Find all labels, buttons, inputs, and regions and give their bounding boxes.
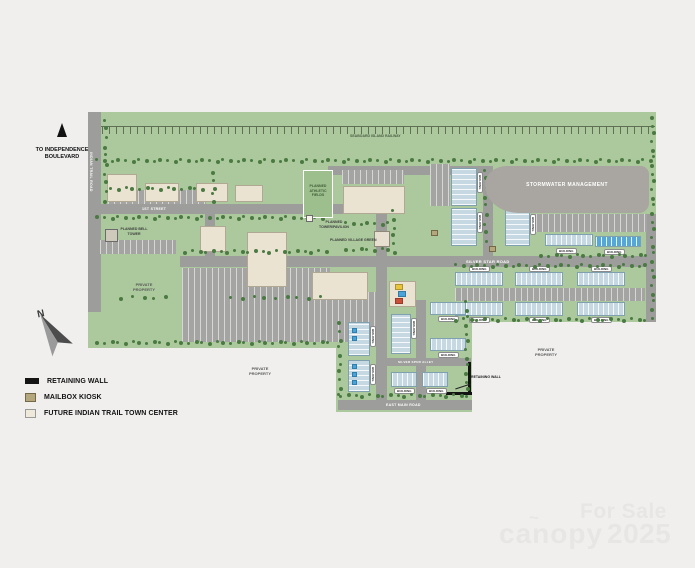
tree-icon xyxy=(188,186,192,190)
tree-icon xyxy=(651,269,654,272)
village-green-label: PLANNED VILLAGE GREEN xyxy=(330,238,400,242)
private-property-label: PRIVATE PROPERTY xyxy=(242,366,278,376)
tree-icon xyxy=(183,251,187,255)
tree-icon xyxy=(601,263,605,267)
tower-marker xyxy=(306,215,313,222)
tree-icon xyxy=(242,215,245,218)
tree-icon xyxy=(105,136,108,139)
tree-icon xyxy=(652,275,656,279)
tree-icon xyxy=(229,159,233,163)
tree-icon xyxy=(376,159,379,162)
tree-icon xyxy=(116,158,120,162)
tree-icon xyxy=(258,160,262,164)
tree-icon xyxy=(237,217,241,221)
tree-icon xyxy=(103,342,106,345)
tree-icon xyxy=(502,159,505,162)
tree-icon xyxy=(546,317,549,320)
tree-icon xyxy=(132,160,136,164)
tree-icon xyxy=(607,159,611,163)
tree-icon xyxy=(208,342,212,346)
tree-icon xyxy=(286,295,290,299)
tree-icon xyxy=(391,209,394,212)
retaining-wall-callout: RETAINING WALL xyxy=(470,375,502,380)
tree-icon xyxy=(462,317,465,320)
tree-icon xyxy=(262,296,266,300)
tree-icon xyxy=(576,253,579,256)
tree-icon xyxy=(483,223,486,226)
tree-icon xyxy=(326,341,329,344)
tree-icon xyxy=(271,216,274,219)
tree-icon xyxy=(489,160,492,163)
tree-icon xyxy=(652,203,655,206)
tree-icon xyxy=(292,342,296,346)
tree-icon xyxy=(460,159,463,162)
tree-icon xyxy=(651,149,655,153)
tree-icon xyxy=(313,342,316,345)
tree-icon xyxy=(130,187,134,191)
tree-icon xyxy=(104,126,108,130)
tree-icon xyxy=(466,363,469,366)
tree-icon xyxy=(567,317,571,321)
tree-icon xyxy=(538,263,541,266)
private-property-label: PRIVATE PROPERTY xyxy=(528,347,564,357)
tree-icon xyxy=(180,188,183,191)
townhome-building xyxy=(577,302,625,316)
tree-icon xyxy=(103,173,106,176)
tree-icon xyxy=(274,297,277,300)
tree-icon xyxy=(620,158,624,162)
tree-icon xyxy=(216,160,220,164)
watermark-brand: canopy xyxy=(499,518,603,550)
tree-icon xyxy=(339,387,343,391)
tree-icon xyxy=(618,253,621,256)
tree-icon xyxy=(650,236,653,239)
tree-icon xyxy=(641,158,644,161)
tree-icon xyxy=(504,317,507,320)
tree-icon xyxy=(334,159,337,162)
townhome-building xyxy=(515,272,563,286)
tree-icon xyxy=(622,319,626,323)
pool-cell xyxy=(352,336,357,341)
tree-icon xyxy=(565,159,569,163)
tree-icon xyxy=(494,158,498,162)
tree-icon xyxy=(617,265,621,269)
tree-icon xyxy=(464,348,467,351)
pool-cell xyxy=(352,364,357,369)
tree-icon xyxy=(104,153,107,156)
tree-icon xyxy=(124,342,128,346)
tree-icon xyxy=(111,217,115,221)
tree-icon xyxy=(305,341,309,345)
tree-icon xyxy=(221,158,224,161)
tree-icon xyxy=(153,340,157,344)
tree-icon xyxy=(373,249,377,253)
amenity-marker-icon xyxy=(398,291,406,297)
tree-icon xyxy=(338,378,341,381)
compass-icon: N xyxy=(30,303,74,359)
building-label-pill: BUILDING xyxy=(604,249,625,255)
tree-icon xyxy=(466,339,470,343)
tree-icon xyxy=(296,249,300,253)
tree-icon xyxy=(254,249,258,253)
tree-icon xyxy=(283,250,287,254)
tree-icon xyxy=(609,264,612,267)
tree-icon xyxy=(651,173,654,176)
silver-star-road-label: SILVER STAR ROAD xyxy=(466,259,510,264)
town-center-swatch-icon xyxy=(25,409,36,418)
tree-icon xyxy=(512,318,516,322)
tree-icon xyxy=(125,186,128,189)
tree-icon xyxy=(174,160,178,164)
tree-icon xyxy=(559,263,563,267)
tree-icon xyxy=(263,158,266,161)
tree-icon xyxy=(525,264,528,267)
tree-icon xyxy=(368,393,371,396)
tree-icon xyxy=(195,160,198,163)
tree-icon xyxy=(146,186,150,190)
tree-icon xyxy=(132,217,135,220)
tree-icon xyxy=(652,251,655,254)
townhome-building xyxy=(505,210,530,246)
townhome-building xyxy=(451,168,477,206)
tree-icon xyxy=(326,158,330,162)
tree-icon xyxy=(339,339,343,343)
tree-icon xyxy=(344,248,348,252)
tree-icon xyxy=(137,158,140,161)
tree-icon xyxy=(153,160,156,163)
building-label-pill: BUILDING xyxy=(411,318,417,339)
tree-icon xyxy=(338,330,341,333)
tree-icon xyxy=(250,159,253,162)
tree-icon xyxy=(363,160,366,163)
compass-n-label: N xyxy=(36,308,45,320)
tree-icon xyxy=(484,203,487,206)
stormwater-label: STORMWATER MANAGEMENT xyxy=(505,182,629,188)
tree-icon xyxy=(402,395,406,399)
tree-icon xyxy=(622,263,625,266)
tree-icon xyxy=(339,363,342,366)
legend-item-town-center: FUTURE INDIAN TRAIL TOWN CENTER xyxy=(25,405,178,421)
tree-icon xyxy=(242,341,245,344)
tree-icon xyxy=(263,215,267,219)
tree-icon xyxy=(319,295,322,298)
tree-icon xyxy=(389,158,392,161)
tree-icon xyxy=(337,345,340,348)
tree-icon xyxy=(547,255,550,258)
tree-icon xyxy=(384,160,388,164)
tree-icon xyxy=(462,264,466,268)
mailbox-kiosk-swatch-icon xyxy=(25,393,36,402)
tree-icon xyxy=(221,341,225,345)
tree-icon xyxy=(554,265,557,268)
tree-icon xyxy=(464,300,467,303)
watermark-brand-tilde-icon: ~ xyxy=(529,508,539,528)
tree-icon xyxy=(229,296,232,299)
tree-icon xyxy=(473,158,476,161)
tree-icon xyxy=(650,212,654,216)
tree-icon xyxy=(258,217,261,220)
tree-icon xyxy=(373,222,376,225)
tree-icon xyxy=(410,393,413,396)
tree-icon xyxy=(609,317,613,321)
tree-icon xyxy=(485,213,489,217)
tree-icon xyxy=(200,215,203,218)
tree-icon xyxy=(596,318,600,322)
tree-icon xyxy=(229,216,232,219)
tree-icon xyxy=(588,317,591,320)
tree-icon xyxy=(267,251,271,255)
tree-icon xyxy=(309,251,313,255)
east-main-road-label: EAST MAIN ROAD xyxy=(386,403,421,407)
tree-icon xyxy=(153,217,157,221)
tree-icon xyxy=(284,341,287,344)
townhome-building xyxy=(391,314,411,354)
tree-icon xyxy=(650,164,654,168)
tree-icon xyxy=(253,295,256,298)
tree-icon xyxy=(337,369,341,373)
tree-icon xyxy=(216,340,219,343)
tree-icon xyxy=(279,160,282,163)
tree-icon xyxy=(116,341,119,344)
parking-lot xyxy=(430,164,450,206)
tree-icon xyxy=(103,200,107,204)
tree-icon xyxy=(470,318,474,322)
tree-icon xyxy=(533,318,536,321)
tree-icon xyxy=(195,340,199,344)
tree-icon xyxy=(393,227,396,230)
tree-icon xyxy=(221,215,225,219)
tree-icon xyxy=(649,159,653,163)
tree-icon xyxy=(138,188,141,191)
tree-icon xyxy=(211,192,214,195)
tree-icon xyxy=(650,116,654,120)
tree-icon xyxy=(360,223,363,226)
pool-cell xyxy=(352,372,357,377)
building-label-pill: BUILDING xyxy=(530,214,536,235)
tree-icon xyxy=(246,251,249,254)
tree-icon xyxy=(95,341,99,345)
building-label-pill: BUILDING xyxy=(477,212,483,233)
tree-icon xyxy=(317,249,320,252)
tree-icon xyxy=(557,158,560,161)
townhome-building xyxy=(391,372,417,387)
pool-cell xyxy=(352,328,357,333)
tree-icon xyxy=(241,250,245,254)
first-street-label: 1ST STREET xyxy=(142,207,166,211)
tree-icon xyxy=(594,160,598,164)
tree-icon xyxy=(212,179,215,182)
railroad-track xyxy=(88,126,655,134)
railway-label: SEABOARD ISLAND RAILWAY xyxy=(350,134,401,138)
tree-icon xyxy=(386,221,389,224)
amenity-marker-icon xyxy=(395,284,403,290)
tree-icon xyxy=(431,393,435,397)
tree-icon xyxy=(630,317,633,320)
tree-icon xyxy=(386,248,390,252)
tree-icon xyxy=(643,319,646,322)
tree-icon xyxy=(452,393,455,396)
tree-icon xyxy=(187,159,191,163)
tree-icon xyxy=(321,340,325,344)
tree-icon xyxy=(475,319,478,322)
tree-icon xyxy=(258,340,261,343)
tree-icon xyxy=(602,254,605,257)
building-label-pill: BUILDING xyxy=(426,388,447,394)
tree-icon xyxy=(158,215,161,218)
tree-icon xyxy=(439,394,442,397)
tree-icon xyxy=(568,255,572,259)
legend: RETAINING WALL MAILBOX KIOSK FUTURE INDI… xyxy=(25,373,178,421)
parking-lot xyxy=(342,170,404,184)
silver-spur-alley-label: SILVER SPUR ALLEY xyxy=(398,360,433,364)
tree-icon xyxy=(552,160,556,164)
tree-icon xyxy=(279,340,283,344)
tree-icon xyxy=(533,265,537,269)
tree-icon xyxy=(284,158,288,162)
townhome-building xyxy=(422,372,448,387)
tree-icon xyxy=(651,197,655,201)
townhome-building xyxy=(577,272,625,286)
tree-icon xyxy=(116,215,119,218)
tree-icon xyxy=(465,333,468,336)
tree-icon xyxy=(237,340,241,344)
tree-icon xyxy=(392,218,396,222)
tree-icon xyxy=(137,341,141,345)
tree-icon xyxy=(109,187,112,190)
tower-pavilion-label: PLANNED TOWER/PAVILION xyxy=(314,220,354,229)
retaining-wall-swatch-icon xyxy=(25,378,39,384)
tree-icon xyxy=(601,319,604,322)
tree-icon xyxy=(483,317,487,321)
tree-icon xyxy=(639,253,643,257)
tree-icon xyxy=(465,395,468,398)
tree-icon xyxy=(481,159,485,163)
tree-icon xyxy=(124,216,128,220)
tree-icon xyxy=(225,251,229,255)
tree-icon xyxy=(466,387,470,391)
building-label-pill: BUILDING xyxy=(370,326,376,347)
tree-icon xyxy=(555,253,559,257)
tree-icon xyxy=(596,265,599,268)
tree-icon xyxy=(586,159,589,162)
building-label-pill: BUILDING xyxy=(556,248,577,254)
tree-icon xyxy=(137,215,141,219)
tree-icon xyxy=(199,250,203,254)
tree-icon xyxy=(418,159,421,162)
tree-icon xyxy=(628,159,631,162)
tree-icon xyxy=(365,248,368,251)
tree-icon xyxy=(201,188,205,192)
townhome-building xyxy=(595,236,641,247)
tree-icon xyxy=(292,216,296,220)
mailbox-kiosk-marker xyxy=(431,230,438,236)
tree-icon xyxy=(174,340,177,343)
townhome-building xyxy=(545,234,593,246)
tree-icon xyxy=(241,297,245,301)
tree-icon xyxy=(631,255,634,258)
tree-icon xyxy=(491,265,495,269)
independence-arrow-icon xyxy=(57,123,67,137)
tree-icon xyxy=(360,395,364,399)
legend-label: RETAINING WALL xyxy=(47,378,108,385)
tree-icon xyxy=(355,394,358,397)
tree-icon xyxy=(447,160,450,163)
tree-icon xyxy=(589,255,592,258)
tree-icon xyxy=(220,250,223,253)
tree-icon xyxy=(650,284,653,287)
tree-icon xyxy=(651,125,654,128)
building-label-pill: BUILDING xyxy=(591,266,612,272)
tree-icon xyxy=(650,308,654,312)
tree-icon xyxy=(263,341,267,345)
tree-icon xyxy=(636,160,640,164)
tree-icon xyxy=(250,216,254,220)
tree-icon xyxy=(242,158,246,162)
tree-icon xyxy=(158,341,161,344)
tree-icon xyxy=(233,249,236,252)
tree-icon xyxy=(313,159,317,163)
tree-icon xyxy=(355,159,359,163)
tree-icon xyxy=(554,318,558,322)
tree-icon xyxy=(460,394,464,398)
tree-icon xyxy=(347,158,350,161)
tree-icon xyxy=(143,296,147,300)
tree-icon xyxy=(575,318,578,321)
amenity-marker-icon xyxy=(395,298,403,304)
legend-item-retaining-wall: RETAINING WALL xyxy=(25,373,178,389)
tree-icon xyxy=(145,159,149,163)
tree-icon xyxy=(617,318,620,321)
tree-icon xyxy=(405,160,408,163)
townhome-building xyxy=(451,208,477,246)
tree-icon xyxy=(560,254,563,257)
tree-icon xyxy=(517,263,521,267)
townhome-building xyxy=(515,302,563,316)
town-center-building xyxy=(343,186,405,214)
tree-icon xyxy=(575,265,579,269)
tree-icon xyxy=(179,341,183,345)
tree-icon xyxy=(237,160,240,163)
stormwater-pond xyxy=(485,166,649,213)
pool-cell xyxy=(352,380,357,385)
tree-icon xyxy=(638,318,642,322)
tree-icon xyxy=(573,160,576,163)
tree-icon xyxy=(124,159,127,162)
tree-icon xyxy=(454,263,457,266)
tree-icon xyxy=(229,342,232,345)
tree-icon xyxy=(145,216,148,219)
tree-icon xyxy=(397,394,400,397)
tree-icon xyxy=(195,217,199,221)
town-center-building xyxy=(235,185,263,202)
parking-lot xyxy=(455,288,645,301)
tree-icon xyxy=(483,196,487,200)
parking-lot xyxy=(100,240,176,254)
tree-icon xyxy=(376,394,380,398)
tree-icon xyxy=(483,264,486,267)
legend-item-mailbox-kiosk: MAILBOX KIOSK xyxy=(25,389,178,405)
tree-icon xyxy=(652,227,656,231)
tree-icon xyxy=(104,180,108,184)
building-label-pill: BUILDING xyxy=(370,364,376,385)
independence-note: TO INDEPENDENCE BOULEVARD xyxy=(20,147,104,161)
tree-icon xyxy=(465,357,469,361)
tree-icon xyxy=(466,315,469,318)
tree-icon xyxy=(174,217,177,220)
tree-icon xyxy=(650,260,654,264)
tree-icon xyxy=(650,188,653,191)
tree-icon xyxy=(465,309,469,313)
